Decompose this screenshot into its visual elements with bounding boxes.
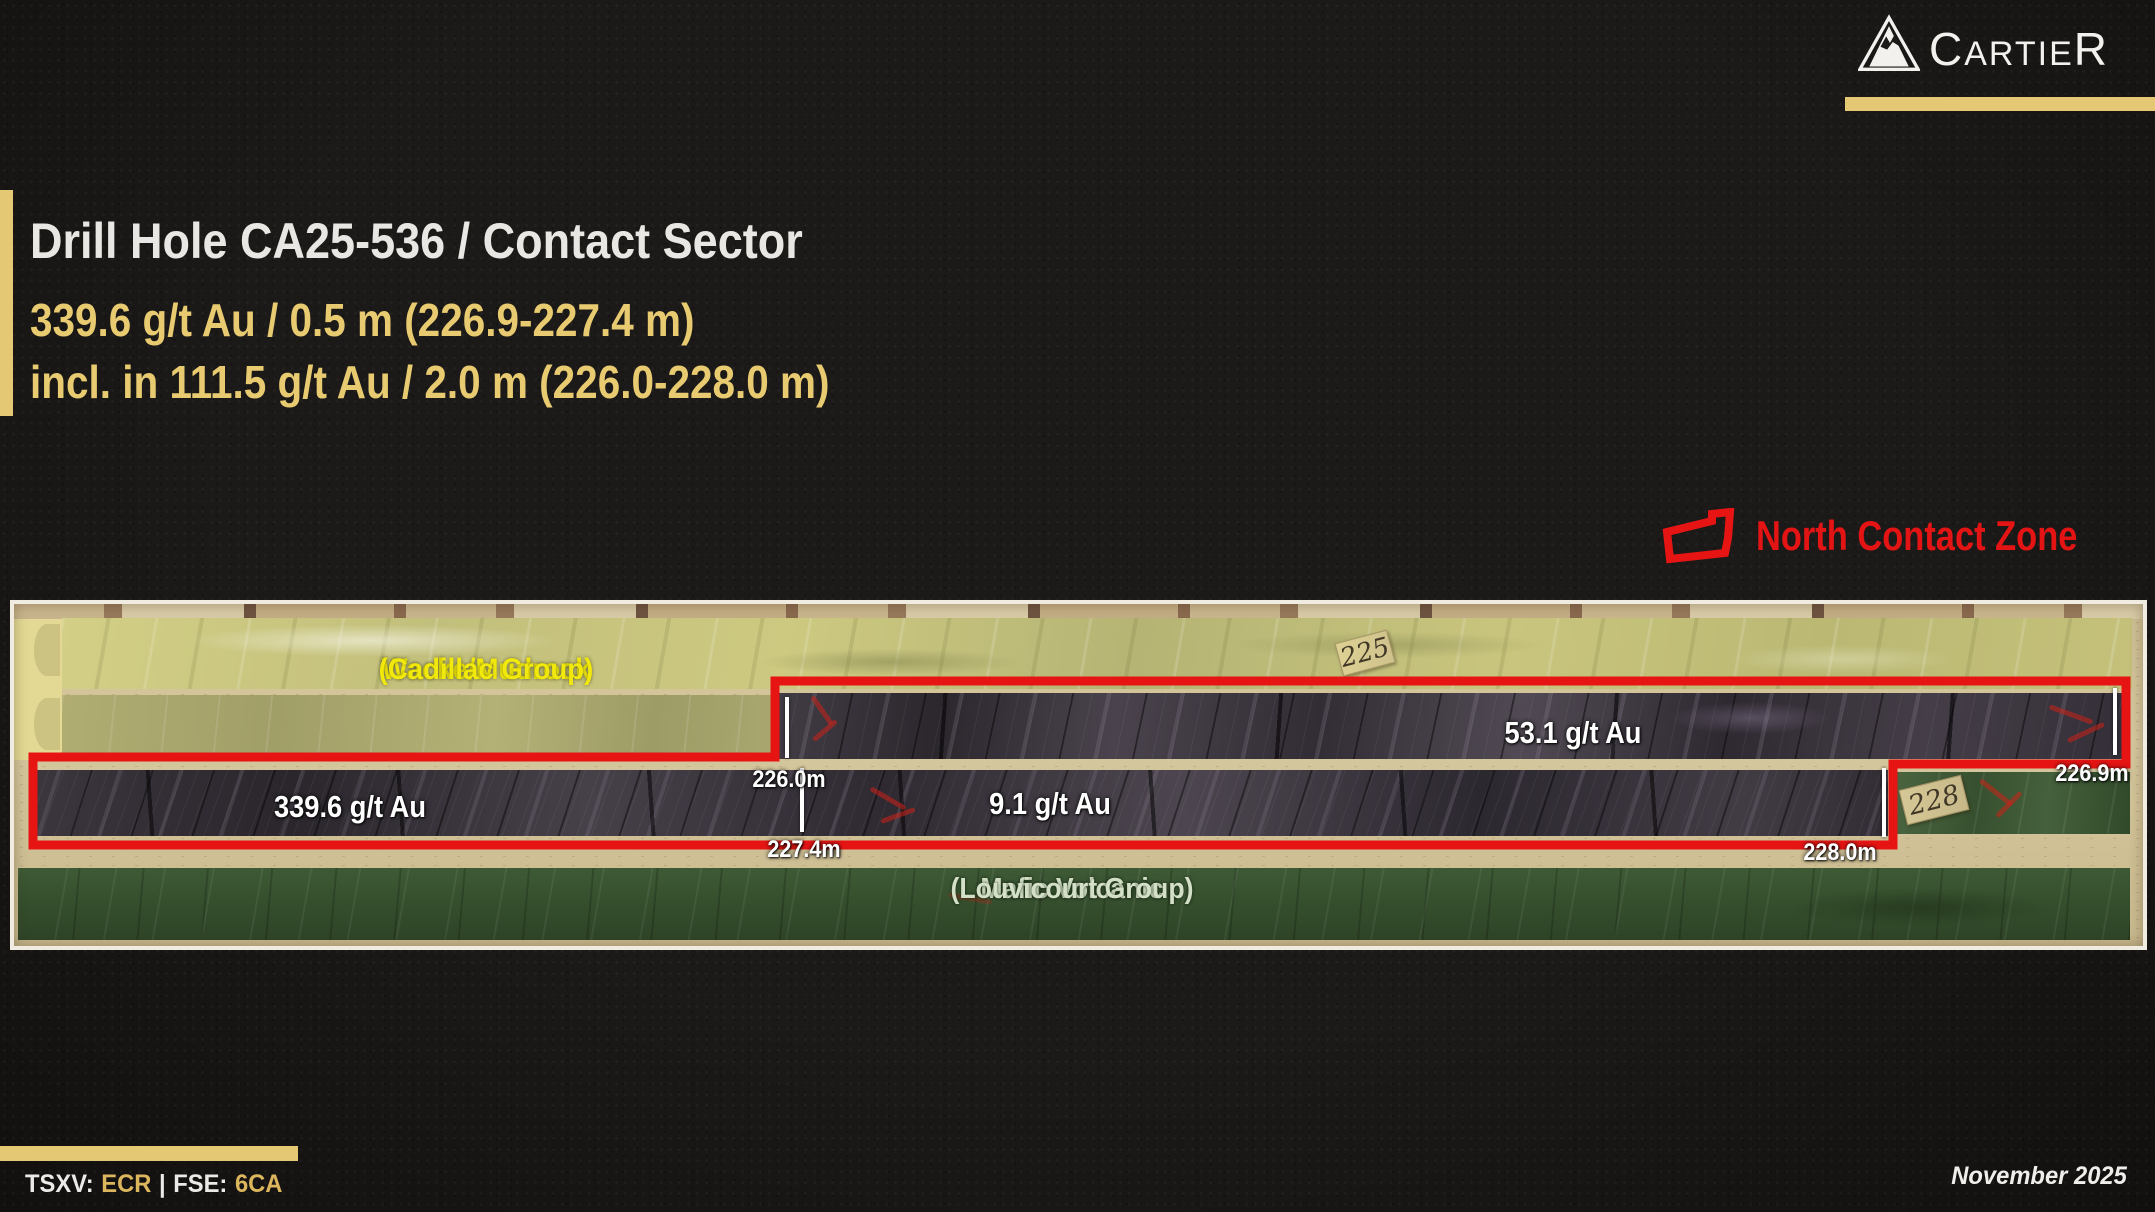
assay-label-339-6: 339.6 g/t Au — [274, 789, 426, 825]
zone-outline-icon — [1660, 508, 1736, 564]
depth-label-227-4: 227.4m — [767, 836, 840, 864]
gold-accent-bar-left — [0, 190, 13, 416]
legend-label: North Contact Zone — [1756, 512, 2077, 560]
lithology-wacke-line2: (Cadillac Group) — [379, 650, 594, 690]
legend-north-contact-zone: North Contact Zone — [1660, 508, 2148, 564]
logo-letter: R — [2074, 23, 2109, 75]
fse-label: FSE: — [173, 1170, 227, 1198]
logo-letters: ARTIE — [1964, 35, 2074, 73]
depth-label-226-9: 226.9m — [2055, 760, 2128, 788]
depth-label-226-0: 226.0m — [752, 766, 825, 794]
tsxv-label: TSXV: — [25, 1170, 94, 1198]
depth-tick-228-0 — [1882, 768, 1886, 837]
gold-bar-bottom-left — [0, 1146, 298, 1161]
assay-label-53-1: 53.1 g/t Au — [1505, 715, 1642, 751]
intercept-included: incl. in 111.5 g/t Au / 2.0 m (226.0-228… — [30, 355, 829, 409]
ticker-divider: | — [159, 1170, 166, 1198]
gold-bar-top-right — [1845, 97, 2155, 111]
stock-ticker: TSXV:ECR|FSE:6CA — [25, 1170, 290, 1199]
slide-date: November 2025 — [1951, 1162, 2127, 1191]
lithology-mafic-line2: (Louvicourt Group) — [950, 872, 1193, 907]
slide-title: Drill Hole CA25-536 / Contact Sector — [30, 212, 803, 270]
depth-label-228-0: 228.0m — [1803, 839, 1876, 867]
mountain-icon — [1858, 14, 1920, 72]
logo-wordmark: CARTIER — [1929, 26, 2109, 72]
core-photo: 225 228 226.0m 226.9m 227.4m 228.0m 339.… — [10, 600, 2147, 950]
fse-value: 6CA — [235, 1170, 283, 1198]
logo-letter: C — [1929, 23, 1964, 75]
depth-tick-226-9 — [2113, 688, 2117, 755]
tsxv-value: ECR — [101, 1170, 151, 1198]
depth-tick-226-0 — [785, 697, 789, 758]
cartier-logo: CARTIER — [1858, 14, 2109, 72]
intercept-highlight: 339.6 g/t Au / 0.5 m (226.9-227.4 m) — [30, 293, 694, 347]
assay-label-9-1: 9.1 g/t Au — [989, 786, 1111, 822]
slide: CARTIER Drill Hole CA25-536 / Contact Se… — [0, 0, 2155, 1212]
